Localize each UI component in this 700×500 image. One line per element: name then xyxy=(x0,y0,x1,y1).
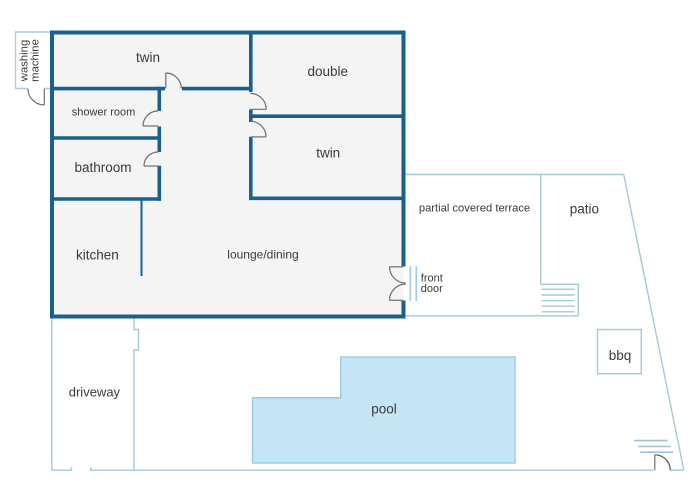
svg-text:bbq: bbq xyxy=(609,348,632,363)
svg-text:pool: pool xyxy=(371,401,397,416)
svg-text:twin: twin xyxy=(316,146,340,161)
svg-text:door: door xyxy=(421,283,443,295)
svg-text:twin: twin xyxy=(136,50,160,65)
svg-text:shower room: shower room xyxy=(72,107,136,119)
svg-text:partial covered terrace: partial covered terrace xyxy=(419,202,530,214)
svg-text:patio: patio xyxy=(570,201,599,216)
svg-text:kitchen: kitchen xyxy=(76,248,119,263)
svg-text:machine: machine xyxy=(30,39,42,82)
svg-text:driveway: driveway xyxy=(69,384,121,399)
svg-text:double: double xyxy=(308,64,349,79)
svg-text:lounge/dining: lounge/dining xyxy=(227,248,298,262)
svg-text:bathroom: bathroom xyxy=(74,160,131,175)
